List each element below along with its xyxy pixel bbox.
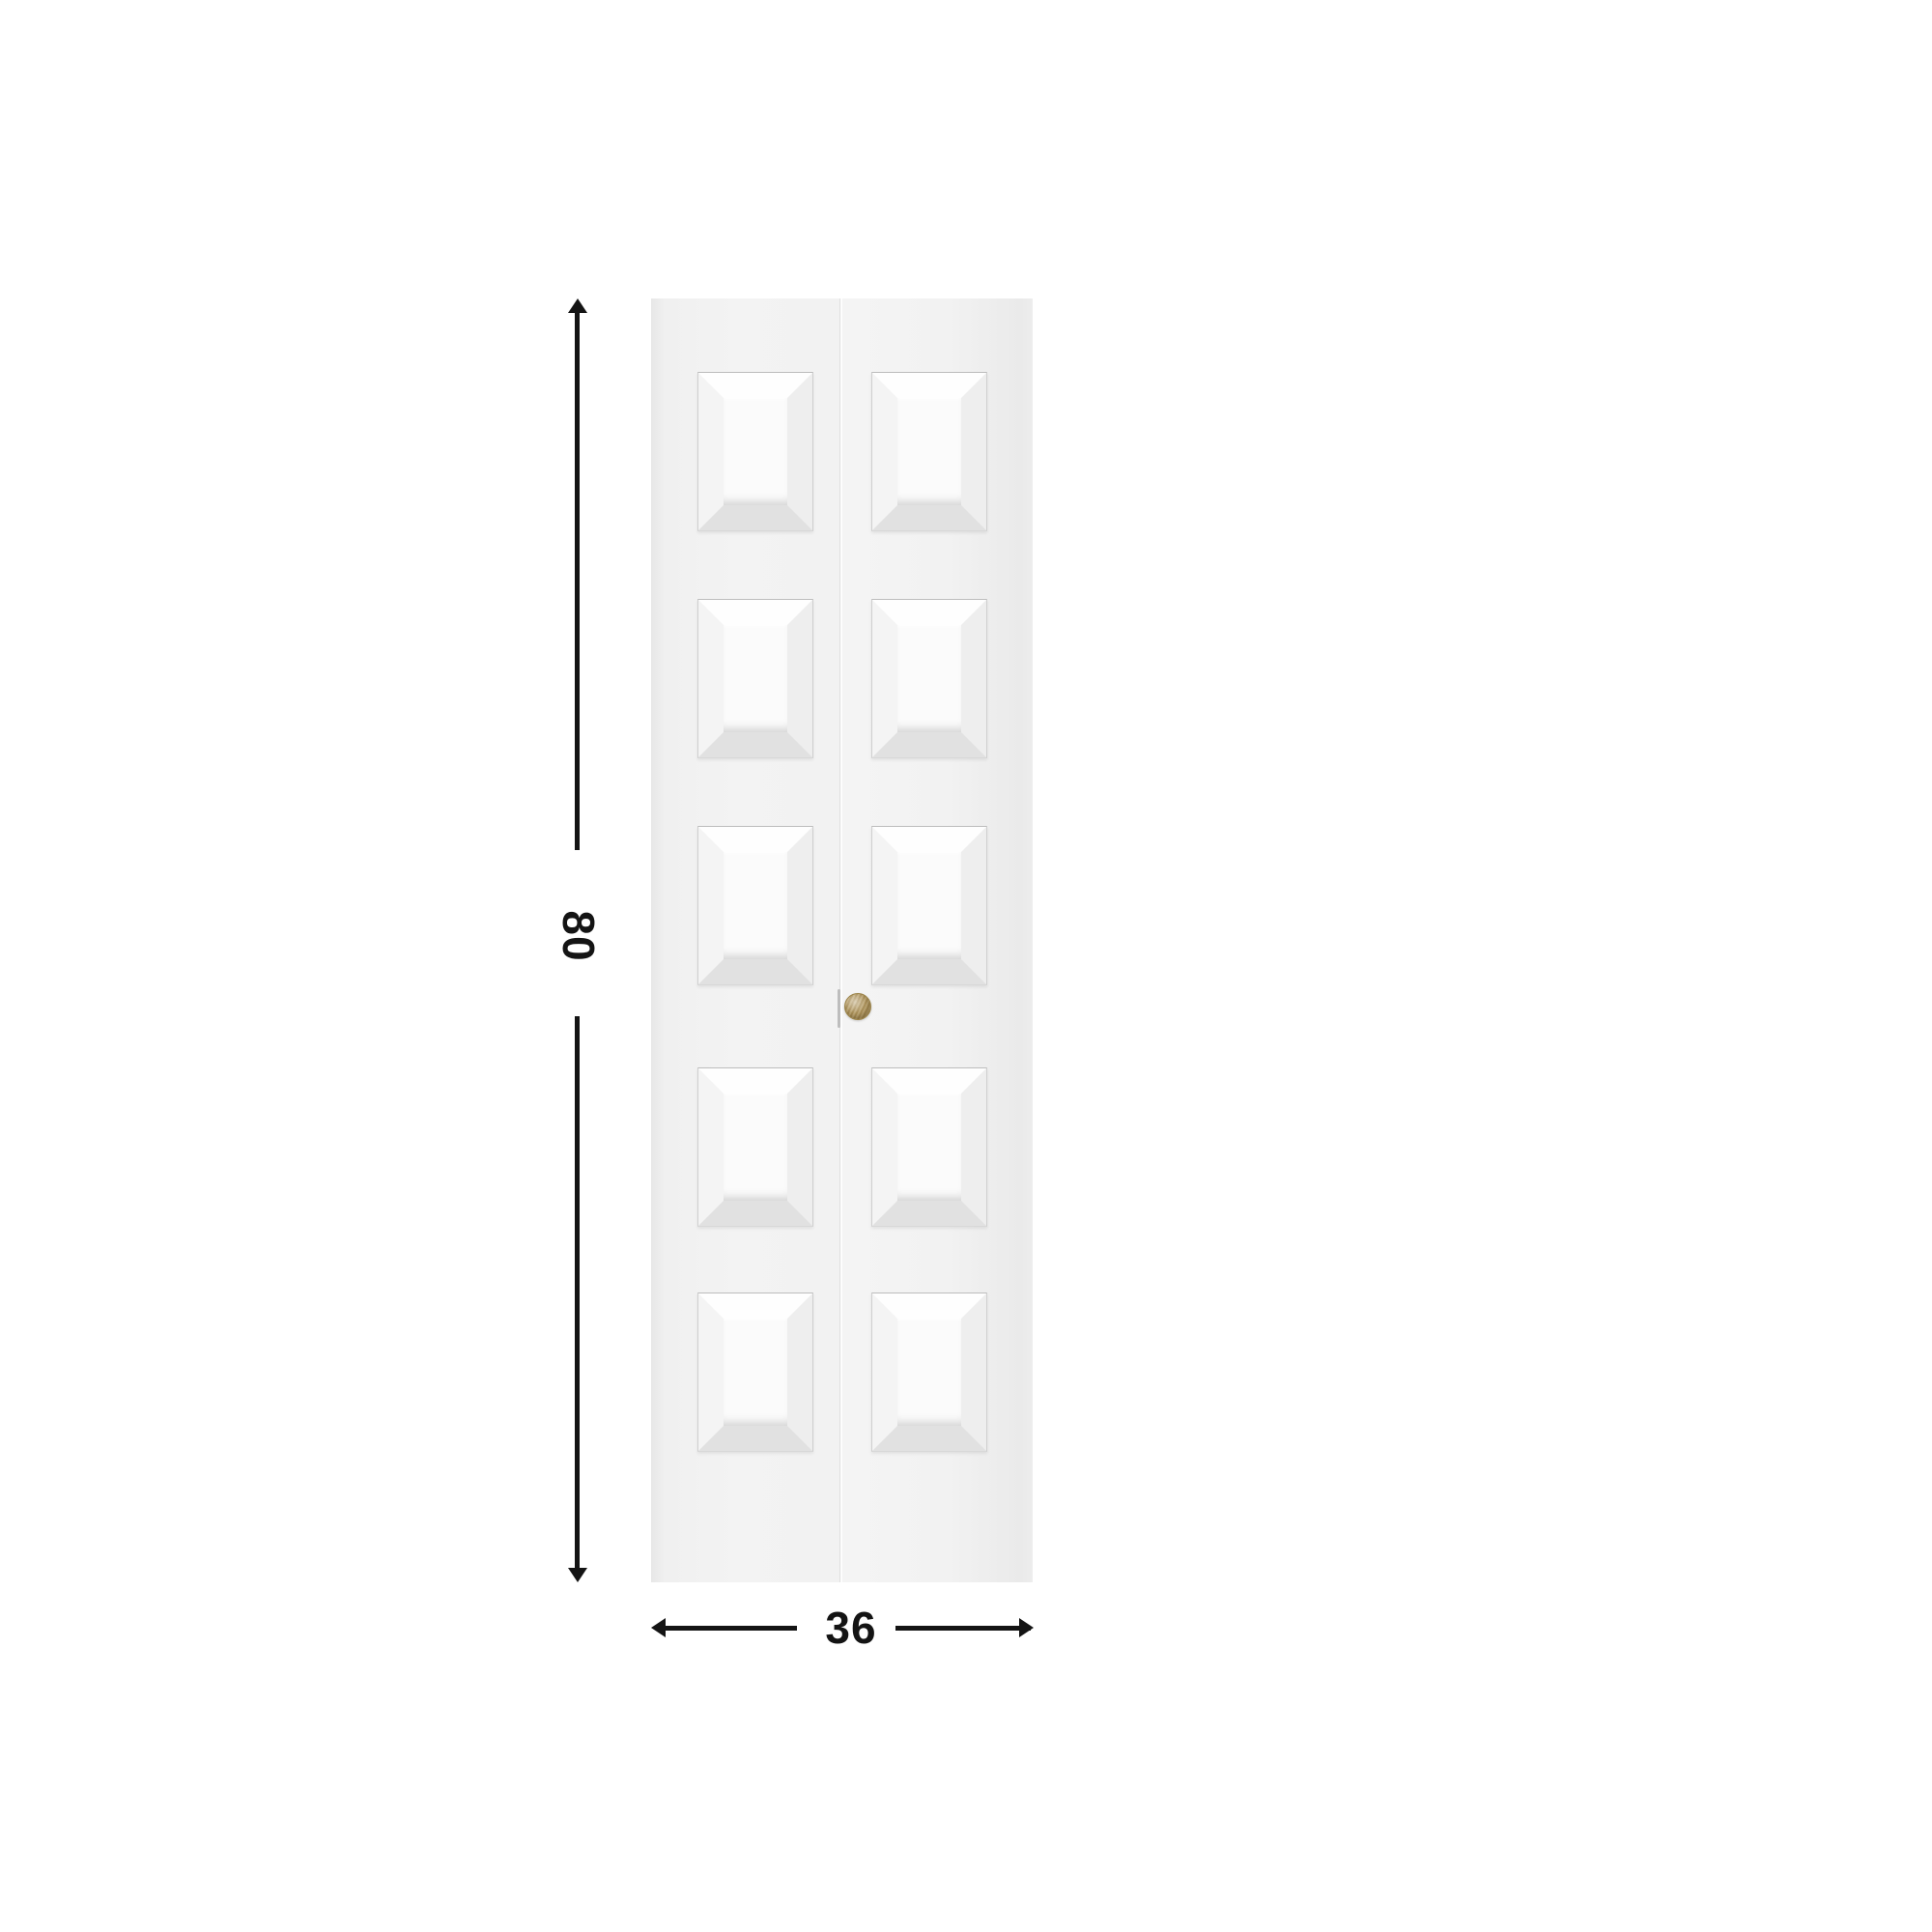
bifold-door bbox=[651, 298, 1033, 1582]
width-dimension-line-left bbox=[664, 1626, 797, 1631]
door-panel bbox=[871, 599, 987, 758]
panel-bevel bbox=[698, 600, 812, 757]
height-dimension-line-upper bbox=[575, 311, 580, 850]
arrow-right-icon bbox=[1019, 1618, 1034, 1637]
panel-bevel bbox=[698, 827, 812, 984]
door-panel bbox=[697, 372, 813, 531]
panel-bevel bbox=[872, 1068, 986, 1226]
width-dimension-label: 36 bbox=[803, 1599, 899, 1657]
height-dimension-line-lower bbox=[575, 1016, 580, 1570]
door-panel bbox=[697, 1293, 813, 1452]
door-panel bbox=[871, 1067, 987, 1227]
door-leaf-right bbox=[842, 298, 1033, 1582]
panel-bevel bbox=[872, 600, 986, 757]
panel-bevel bbox=[698, 1068, 812, 1226]
width-dimension-line-right bbox=[895, 1626, 1031, 1631]
arrow-down-icon bbox=[568, 1568, 587, 1582]
door-panel bbox=[697, 1067, 813, 1227]
panel-bevel bbox=[872, 1293, 986, 1451]
panel-bevel bbox=[872, 827, 986, 984]
door-panel bbox=[871, 372, 987, 531]
door-knob-icon bbox=[844, 993, 871, 1020]
door-panel bbox=[871, 1293, 987, 1452]
door-leaf-left bbox=[651, 298, 839, 1582]
panel-bevel bbox=[698, 373, 812, 530]
panel-bevel bbox=[872, 373, 986, 530]
door-split-shadow bbox=[838, 989, 840, 1028]
panel-bevel bbox=[698, 1293, 812, 1451]
diagram-canvas: 80 36 bbox=[0, 0, 1932, 1932]
door-panel bbox=[697, 599, 813, 758]
door-panel bbox=[697, 826, 813, 985]
height-dimension-label: 80 bbox=[530, 888, 627, 984]
door-panel bbox=[871, 826, 987, 985]
